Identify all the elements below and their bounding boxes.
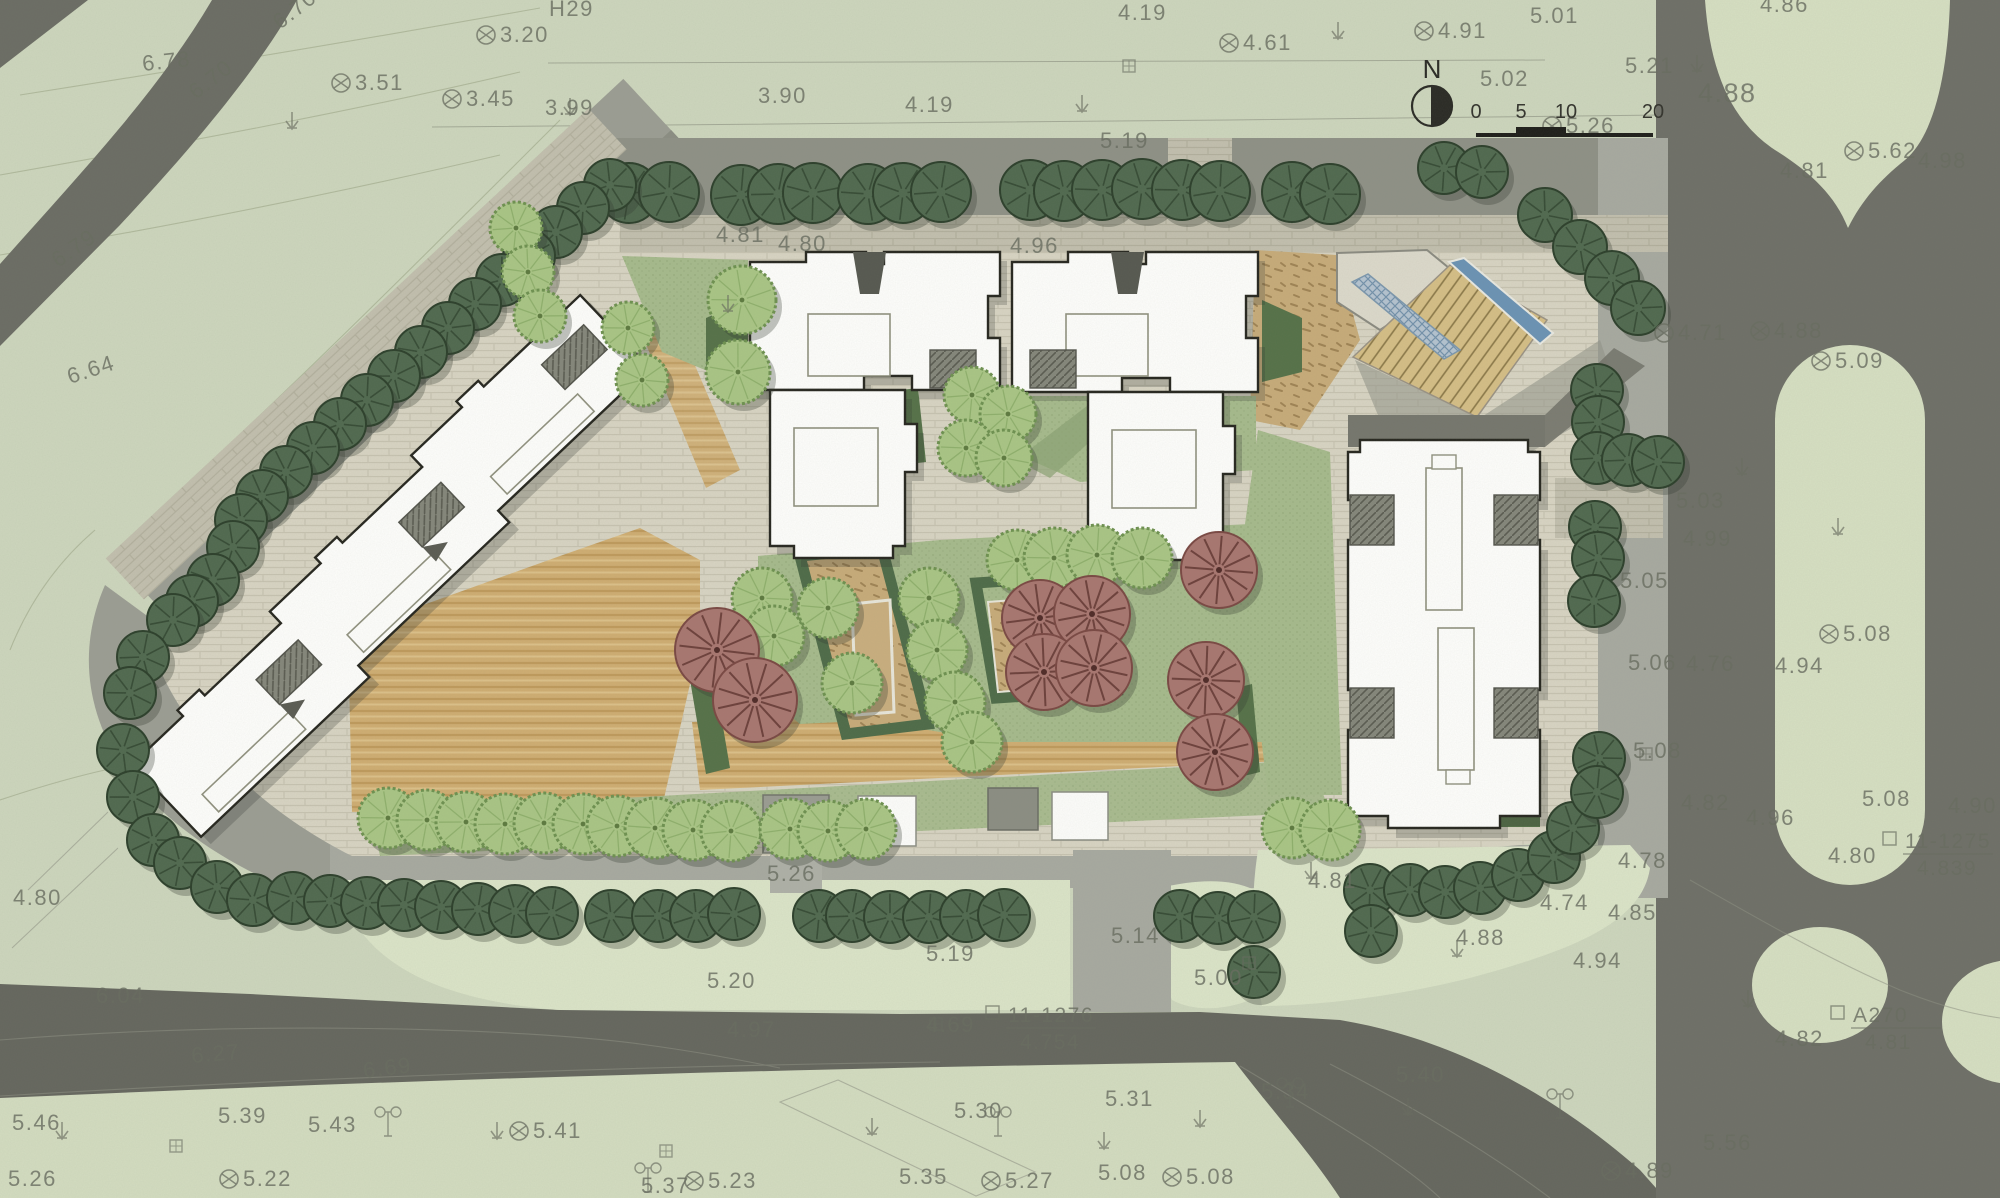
site-plan-canvas: 6.786.706.706.796.643.513.203.453.99H293… bbox=[0, 0, 2000, 1198]
site-plan: 6.786.706.706.796.643.513.203.453.99H293… bbox=[0, 0, 2000, 1198]
grain-texture bbox=[0, 0, 2000, 1198]
